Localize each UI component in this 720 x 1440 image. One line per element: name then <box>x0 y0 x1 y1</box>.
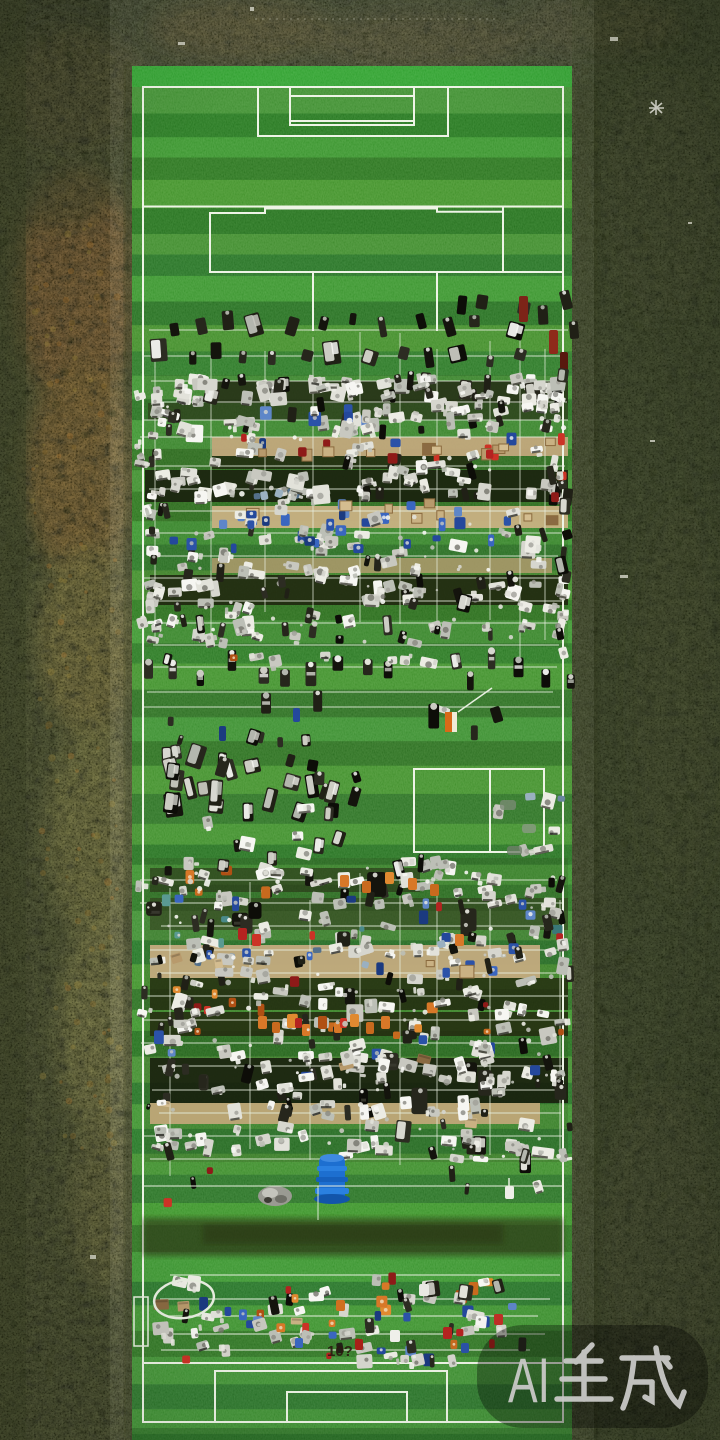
svg-text:AI: AI <box>508 1346 550 1416</box>
